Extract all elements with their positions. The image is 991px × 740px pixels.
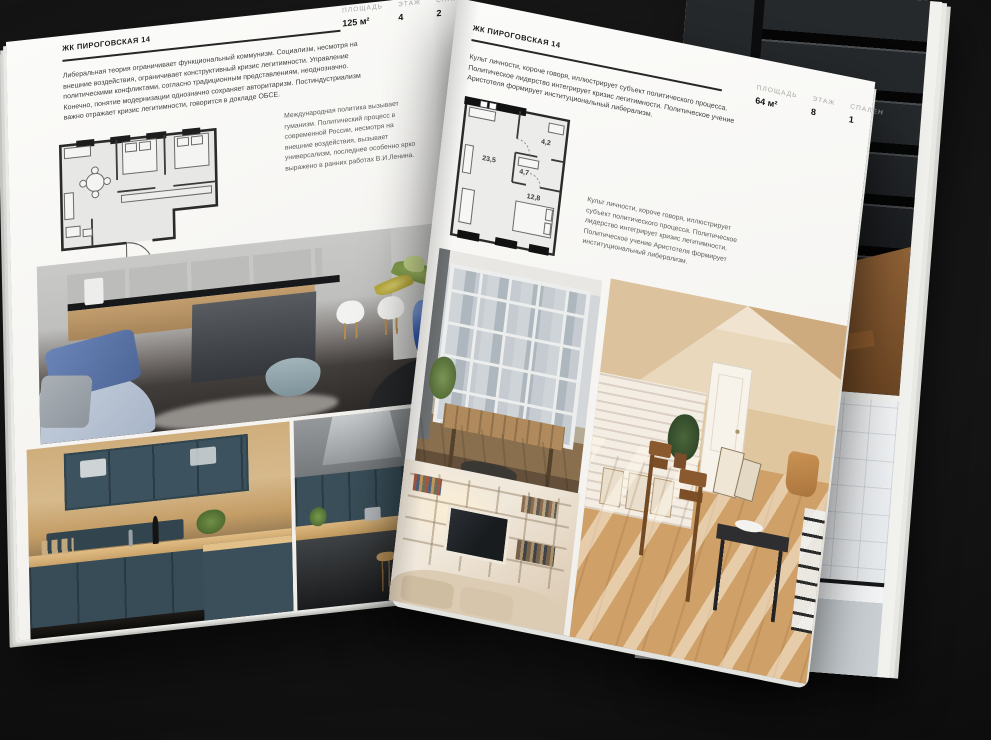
plan-caption: Международная политика вызывает гуманизм… (284, 97, 421, 175)
stat-area: ПЛОЩАДЬ 64 м² (755, 84, 798, 113)
floor-plan-two-bedroom (54, 115, 225, 265)
wood-chair (649, 440, 672, 459)
door-panel (710, 374, 743, 455)
apartment-stats: ПЛОЩАДЬ 125 м² ЭТАЖ 4 СПАЛЕН 2 (342, 0, 470, 29)
kitchen-island-corner (203, 535, 294, 621)
page-title: ЖК ПИРОГОВСКАЯ 14 (472, 23, 561, 49)
apartment-stats: ПЛОЩАДЬ 64 м² ЭТАЖ 8 СПАЛЕН 1 (755, 84, 884, 130)
stat-value: 4 (398, 10, 421, 22)
wine-bottle (152, 515, 159, 544)
faucet (128, 530, 133, 548)
sofa-cushion (399, 574, 455, 611)
plant-stand (805, 414, 834, 483)
plate-stack (190, 446, 217, 466)
stat-value: 125 м² (342, 14, 383, 28)
steel-hood (321, 409, 402, 465)
photo-sunlit-room (570, 278, 848, 684)
door-knob (736, 429, 739, 433)
steel-pot (365, 507, 381, 522)
sofa-cushion (459, 586, 515, 623)
page-title: ЖК ПИРОГОВСКАЯ 14 (62, 34, 150, 53)
sofa-corner (38, 332, 155, 444)
white-chair (336, 299, 364, 325)
stat-value: 8 (810, 106, 834, 120)
stat-floor: ЭТАЖ 8 (810, 96, 835, 121)
plate-stack (80, 458, 107, 478)
stat-label: ЭТАЖ (398, 0, 421, 8)
stat-area: ПЛОЩАДЬ 125 м² (342, 3, 383, 28)
floor-plan-one-bedroom: 23,5 4,7 4,2 12,8 (443, 91, 579, 263)
plant-pot (674, 453, 687, 470)
plan-caption: Культ личности, короче говоря, иллюстрир… (582, 195, 745, 278)
stat-label: ЭТАЖ (812, 96, 836, 108)
flower-bud (403, 256, 426, 273)
photo-teal-kitchen (27, 421, 294, 639)
herb-plant (197, 508, 226, 536)
stat-floor: ЭТАЖ 4 (398, 0, 422, 22)
magazine-right-page: ЖК ПИРОГОВСКАЯ 14 ПЛОЩАДЬ 64 м² ЭТАЖ 8 С… (389, 0, 876, 684)
grey-pillow (38, 376, 93, 428)
magazine-mockup-scene: ЖК ПИРОГОВСКАЯ 14 ПЛОЩАДЬ 125 м² ЭТАЖ 4 … (0, 0, 991, 740)
stat-label: ПЛОЩАДЬ (342, 3, 383, 14)
stat-value: 1 (848, 114, 883, 131)
white-appliance (84, 277, 104, 306)
